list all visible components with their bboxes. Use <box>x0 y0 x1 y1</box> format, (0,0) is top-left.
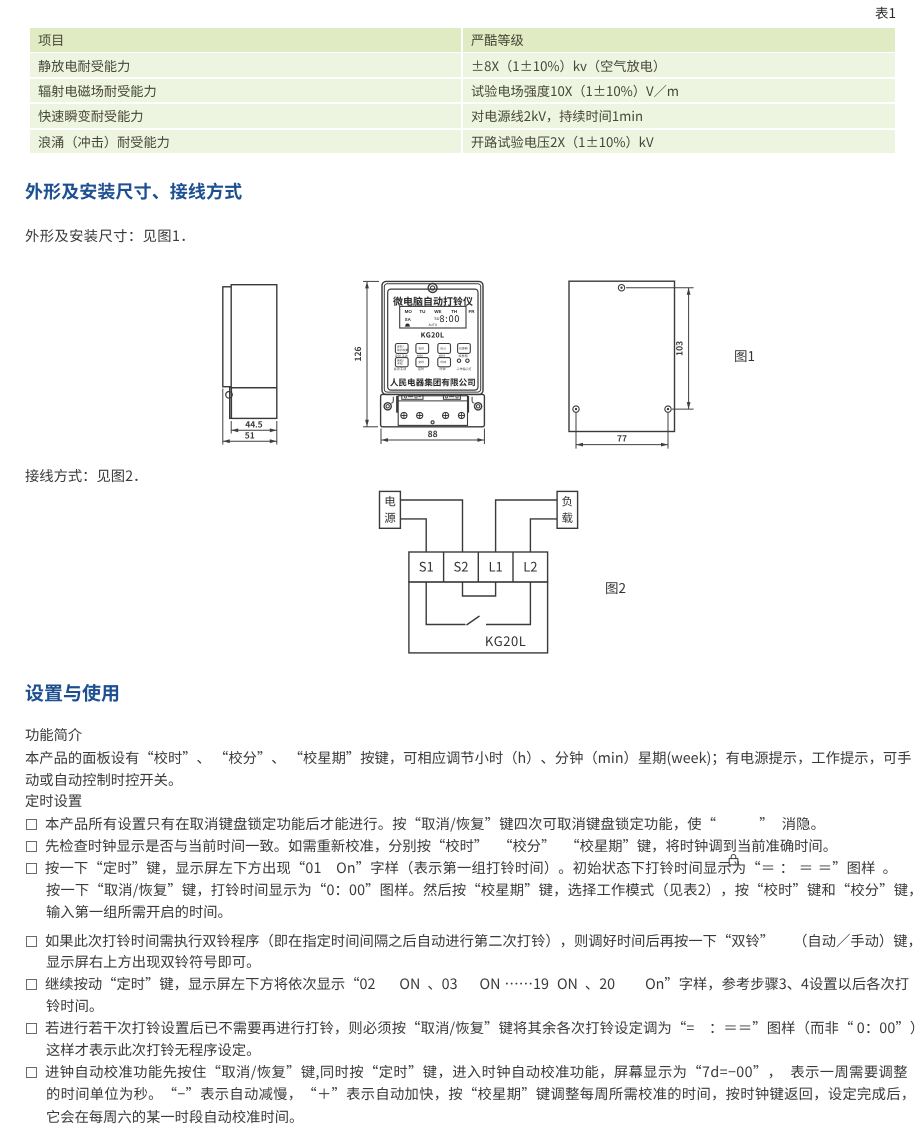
svg-text:自动 手动: 自动 手动 <box>394 367 407 371</box>
svg-text:126: 126 <box>352 346 364 361</box>
svg-text:51: 51 <box>245 429 255 441</box>
svg-text:负: 负 <box>562 494 574 510</box>
svg-text:AUTO: AUTO <box>429 322 438 327</box>
svg-text:取消恢复: 取消恢复 <box>397 348 408 352</box>
svg-text:KG20L: KG20L <box>485 631 526 650</box>
svg-text:载: 载 <box>562 510 574 526</box>
svg-text:8:00: 8:00 <box>440 312 461 325</box>
svg-text:校星期: 校星期 <box>459 354 468 358</box>
svg-text:图1: 图1 <box>734 345 755 365</box>
svg-text:S1: S1 <box>419 557 434 576</box>
svg-text:时钟: 时钟 <box>440 367 446 371</box>
svg-text:校分: 校分 <box>440 347 446 351</box>
svg-text:时钟: 时钟 <box>440 360 446 364</box>
svg-text:图2: 图2 <box>605 577 626 597</box>
svg-text:定时: 定时 <box>419 360 425 364</box>
svg-text:SA: SA <box>405 317 412 323</box>
svg-text:L2: L2 <box>523 557 537 576</box>
svg-text:MO: MO <box>405 309 413 315</box>
svg-text:电: 电 <box>384 494 396 510</box>
svg-text:L1: L1 <box>488 557 502 576</box>
svg-text:校时: 校时 <box>419 347 425 351</box>
svg-text:103: 103 <box>674 341 686 356</box>
svg-text:77: 77 <box>617 433 627 445</box>
svg-text:手动: 手动 <box>397 362 403 366</box>
svg-text:工作指示灯: 工作指示灯 <box>457 366 472 371</box>
svg-text:KG20L: KG20L <box>421 330 445 340</box>
svg-text:人民电器集团有限公司: 人民电器集团有限公司 <box>390 377 476 389</box>
svg-text:定时: 定时 <box>418 367 424 371</box>
svg-text:88: 88 <box>428 428 438 440</box>
svg-text:FR: FR <box>469 309 476 315</box>
svg-text:校星期: 校星期 <box>459 347 468 351</box>
svg-text:TU: TU <box>419 309 425 315</box>
svg-text:S2: S2 <box>454 557 469 576</box>
svg-text:源: 源 <box>384 510 396 526</box>
